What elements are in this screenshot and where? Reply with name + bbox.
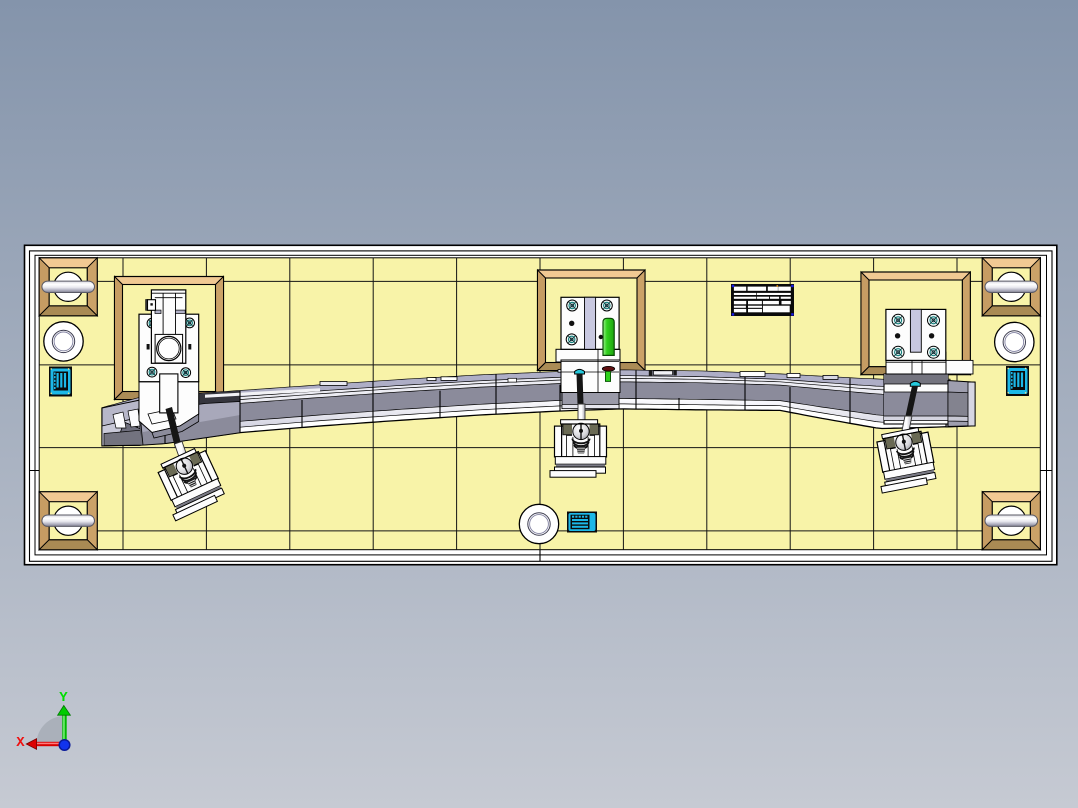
svg-text:Y: Y <box>59 690 68 706</box>
svg-text:X: X <box>16 735 25 751</box>
